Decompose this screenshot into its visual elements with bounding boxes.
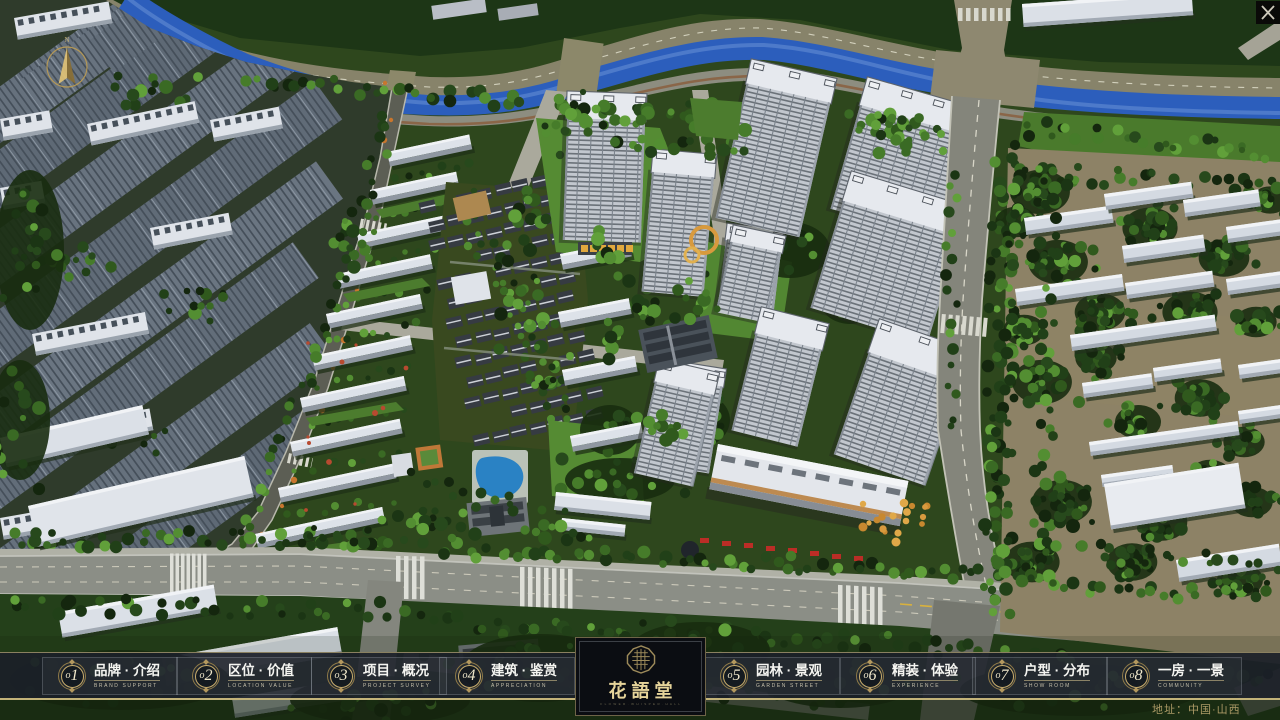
svg-text:N: N (64, 36, 69, 44)
